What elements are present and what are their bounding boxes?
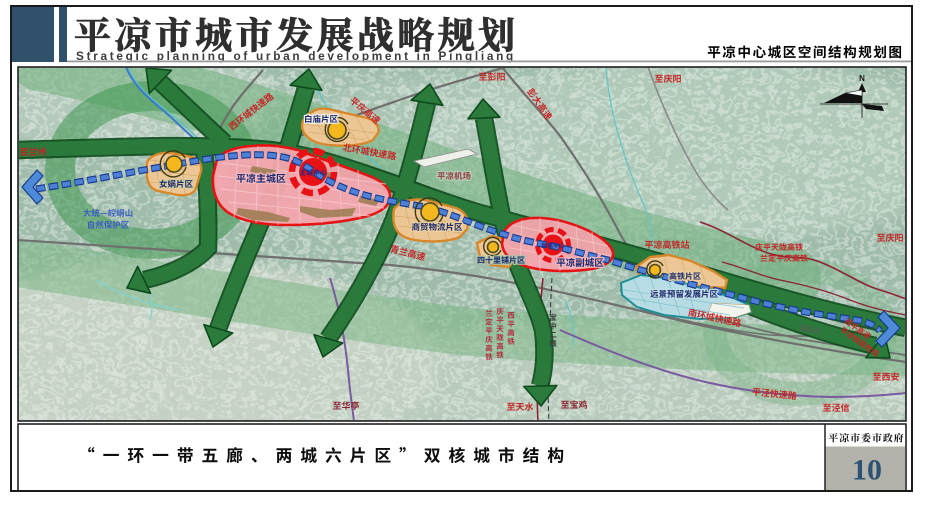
svg-text:10: 10: [852, 454, 882, 487]
svg-text:N: N: [859, 74, 865, 83]
